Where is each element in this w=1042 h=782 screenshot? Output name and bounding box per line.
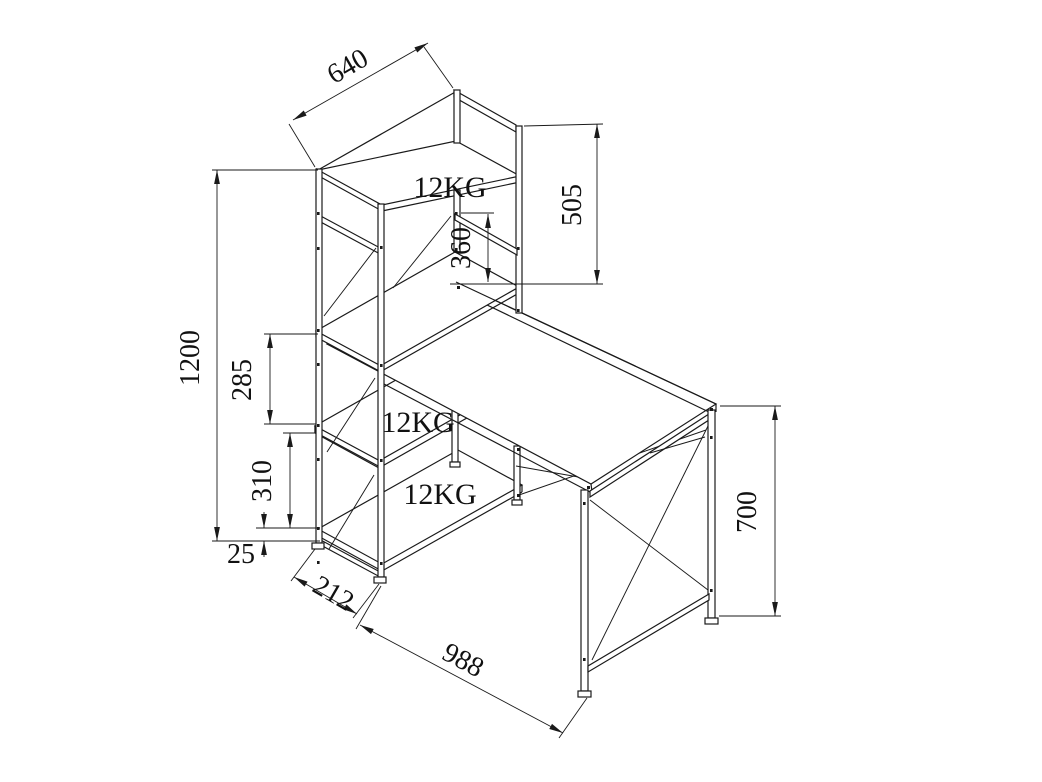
dim-label-top-shelf-depth: 640 bbox=[322, 43, 374, 91]
dim-label-base-clearance: 25 bbox=[227, 539, 255, 570]
dim-label-riser-height: 505 bbox=[557, 184, 588, 226]
dim-label-lower-shelf-gap: 310 bbox=[247, 460, 278, 502]
cross-brace bbox=[590, 500, 708, 590]
dim-label-desk-length: 988 bbox=[437, 637, 489, 684]
load-label-bottom-shelf: 12KG bbox=[403, 478, 476, 511]
load-label-top-shelf: 12KG bbox=[413, 171, 486, 204]
desk-shelf-isometric-drawing: 12KG 12KG 12KG 1200 285 bbox=[0, 0, 1042, 782]
shelf-tier-4-bottom bbox=[317, 450, 522, 578]
dim-label-desk-height: 700 bbox=[732, 491, 763, 533]
load-label-middle-shelf: 12KG bbox=[381, 406, 454, 439]
dim-label-tower-height: 1200 bbox=[175, 330, 206, 386]
dim-label-shelf-to-desktop: 360 bbox=[446, 227, 477, 269]
dim-label-upper-shelf-gap: 285 bbox=[227, 359, 258, 401]
technical-drawing-page: 12KG 12KG 12KG 1200 285 bbox=[0, 0, 1042, 782]
